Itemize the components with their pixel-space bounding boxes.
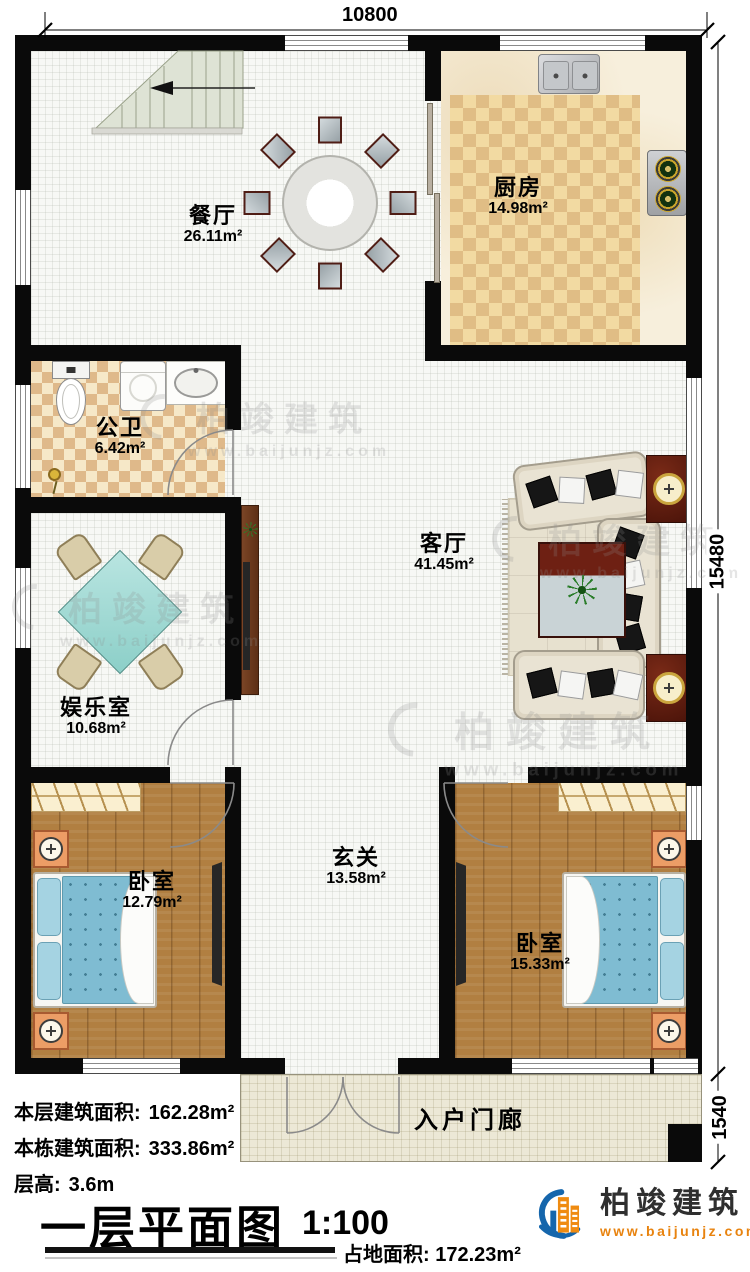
- wall: [425, 35, 441, 101]
- sink-basin: [543, 61, 569, 90]
- room-name: 玄关: [326, 846, 386, 869]
- room-label-bathroom: 公卫 6.42m²: [95, 416, 146, 458]
- bed-pillow: [660, 942, 684, 1000]
- room-label-bedroom-right: 卧室 15.33m²: [510, 932, 570, 974]
- window: [83, 1058, 180, 1074]
- cabinet-plant: [243, 522, 258, 537]
- window: [500, 35, 645, 51]
- bed-pillow: [37, 878, 61, 936]
- sofa-bottom: [513, 650, 645, 720]
- dim-right: 15480: [706, 530, 729, 594]
- sofa-pillow: [558, 477, 585, 504]
- hall-tv: [243, 562, 250, 670]
- window: [15, 385, 31, 488]
- lamp-icon: [39, 1019, 63, 1043]
- land-label: 占地面积:: [343, 1244, 430, 1266]
- wall: [15, 35, 285, 51]
- stove-burner: [655, 186, 681, 212]
- wall: [225, 345, 241, 430]
- room-label-kitchen: 厨房 14.98m²: [488, 176, 548, 218]
- room-name: 公卫: [95, 416, 146, 439]
- bathroom-vanity: [166, 361, 226, 405]
- lamp-icon: [657, 1019, 681, 1043]
- dining-chair: [318, 117, 342, 144]
- room-area: 13.58m²: [326, 870, 386, 888]
- room-name: 入户门廊: [414, 1108, 526, 1133]
- washing-machine: [120, 361, 166, 411]
- room-area: 6.42m²: [95, 440, 146, 458]
- room-name: 卧室: [510, 932, 570, 955]
- room-area: 12.79m²: [122, 894, 182, 912]
- wall: [225, 767, 241, 1074]
- bed-pillow: [37, 942, 61, 1000]
- room-area: 10.68m²: [60, 720, 132, 738]
- title-underline-thin: [45, 1257, 337, 1259]
- sofa-pillow: [613, 670, 644, 701]
- sliding-door-panel: [427, 103, 433, 195]
- brand-name: 柏竣建筑: [600, 1189, 750, 1219]
- land-area: 占地面积: 172.23m²: [343, 1238, 521, 1267]
- room-area: 14.98m²: [488, 200, 548, 218]
- land-value: 172.23m²: [435, 1244, 521, 1266]
- window: [15, 190, 31, 285]
- bedroom-left-tv: [212, 862, 222, 986]
- stat-floor-area: 本层建筑面积:162.28m²: [14, 1096, 234, 1125]
- window: [285, 35, 408, 51]
- sliding-door-panel: [434, 193, 440, 283]
- sofa-pillow: [525, 475, 558, 508]
- window: [654, 1058, 698, 1074]
- brand-mark-icon: [536, 1186, 590, 1242]
- room-name: 厨房: [488, 176, 548, 199]
- wall: [528, 767, 702, 783]
- window: [686, 378, 702, 588]
- dining-table: [282, 155, 378, 251]
- bed-pillow: [660, 878, 684, 936]
- dining-chair: [390, 191, 417, 215]
- room-label-dining: 餐厅 26.11m²: [184, 204, 243, 246]
- floor-drain: [48, 468, 61, 481]
- lamp-icon: [39, 837, 63, 861]
- sink-basin: [572, 61, 598, 90]
- bathroom-sink: [174, 368, 218, 398]
- window: [15, 568, 31, 648]
- stat-label: 本层建筑面积:: [14, 1102, 141, 1124]
- dim-right-small: 1540: [709, 1091, 732, 1144]
- gas-stove: [647, 150, 687, 216]
- nightstand: [33, 1012, 69, 1050]
- nightstand: [33, 830, 69, 868]
- wall: [15, 497, 241, 513]
- room-area: 26.11m²: [184, 228, 243, 246]
- dim-top: 10800: [338, 4, 402, 27]
- sofa-pillow: [615, 470, 644, 499]
- kitchen-sink: [538, 54, 600, 94]
- room-name: 卧室: [122, 870, 182, 893]
- sofa-pillow: [585, 469, 617, 501]
- wall: [408, 35, 500, 51]
- toilet-tank: [52, 361, 90, 379]
- wall: [15, 345, 241, 361]
- room-name: 娱乐室: [60, 696, 132, 719]
- stat-value: 162.28m²: [149, 1102, 235, 1124]
- wall: [15, 767, 170, 783]
- wall: [225, 513, 241, 700]
- room-area: 15.33m²: [510, 956, 570, 974]
- room-name: 客厅: [414, 532, 474, 555]
- room-label-bedroom-left: 卧室 12.79m²: [122, 870, 182, 912]
- title-underline: [45, 1247, 335, 1253]
- brand-logo: 柏竣建筑 www.baijunjz.com: [536, 1186, 750, 1242]
- nightstand: [651, 1012, 687, 1050]
- sofa-pillow: [526, 667, 558, 699]
- bedroom-right-tv: [456, 862, 466, 986]
- lamp-icon: [653, 672, 685, 704]
- room-name: 餐厅: [184, 204, 243, 227]
- room-label-entertainment: 娱乐室 10.68m²: [60, 696, 132, 738]
- stove-burner: [655, 156, 681, 182]
- room-label-living: 客厅 41.45m²: [414, 532, 474, 574]
- dining-chair: [318, 263, 342, 290]
- wall: [439, 767, 455, 1074]
- dining-chair: [244, 191, 271, 215]
- room-label-porch: 入户门廊: [414, 1108, 526, 1133]
- wall: [668, 1124, 702, 1162]
- coffee-table-plant: [567, 575, 597, 605]
- nightstand: [651, 830, 687, 868]
- stat-building-area: 本栋建筑面积:333.86m²: [14, 1132, 234, 1161]
- lamp-icon: [657, 837, 681, 861]
- wall: [425, 345, 702, 361]
- floor-kitchen-tiles: [450, 95, 640, 345]
- sofa-pillow: [557, 670, 586, 699]
- room-label-foyer: 玄关 13.58m²: [326, 846, 386, 888]
- lamp-icon: [653, 473, 685, 505]
- window: [512, 1058, 650, 1074]
- room-area: 41.45m²: [414, 556, 474, 574]
- stat-label: 本栋建筑面积:: [14, 1138, 141, 1160]
- stat-value: 333.86m²: [149, 1138, 235, 1160]
- wall: [425, 281, 441, 345]
- brand-url: www.baijunjz.com: [600, 1223, 750, 1239]
- window: [686, 786, 702, 840]
